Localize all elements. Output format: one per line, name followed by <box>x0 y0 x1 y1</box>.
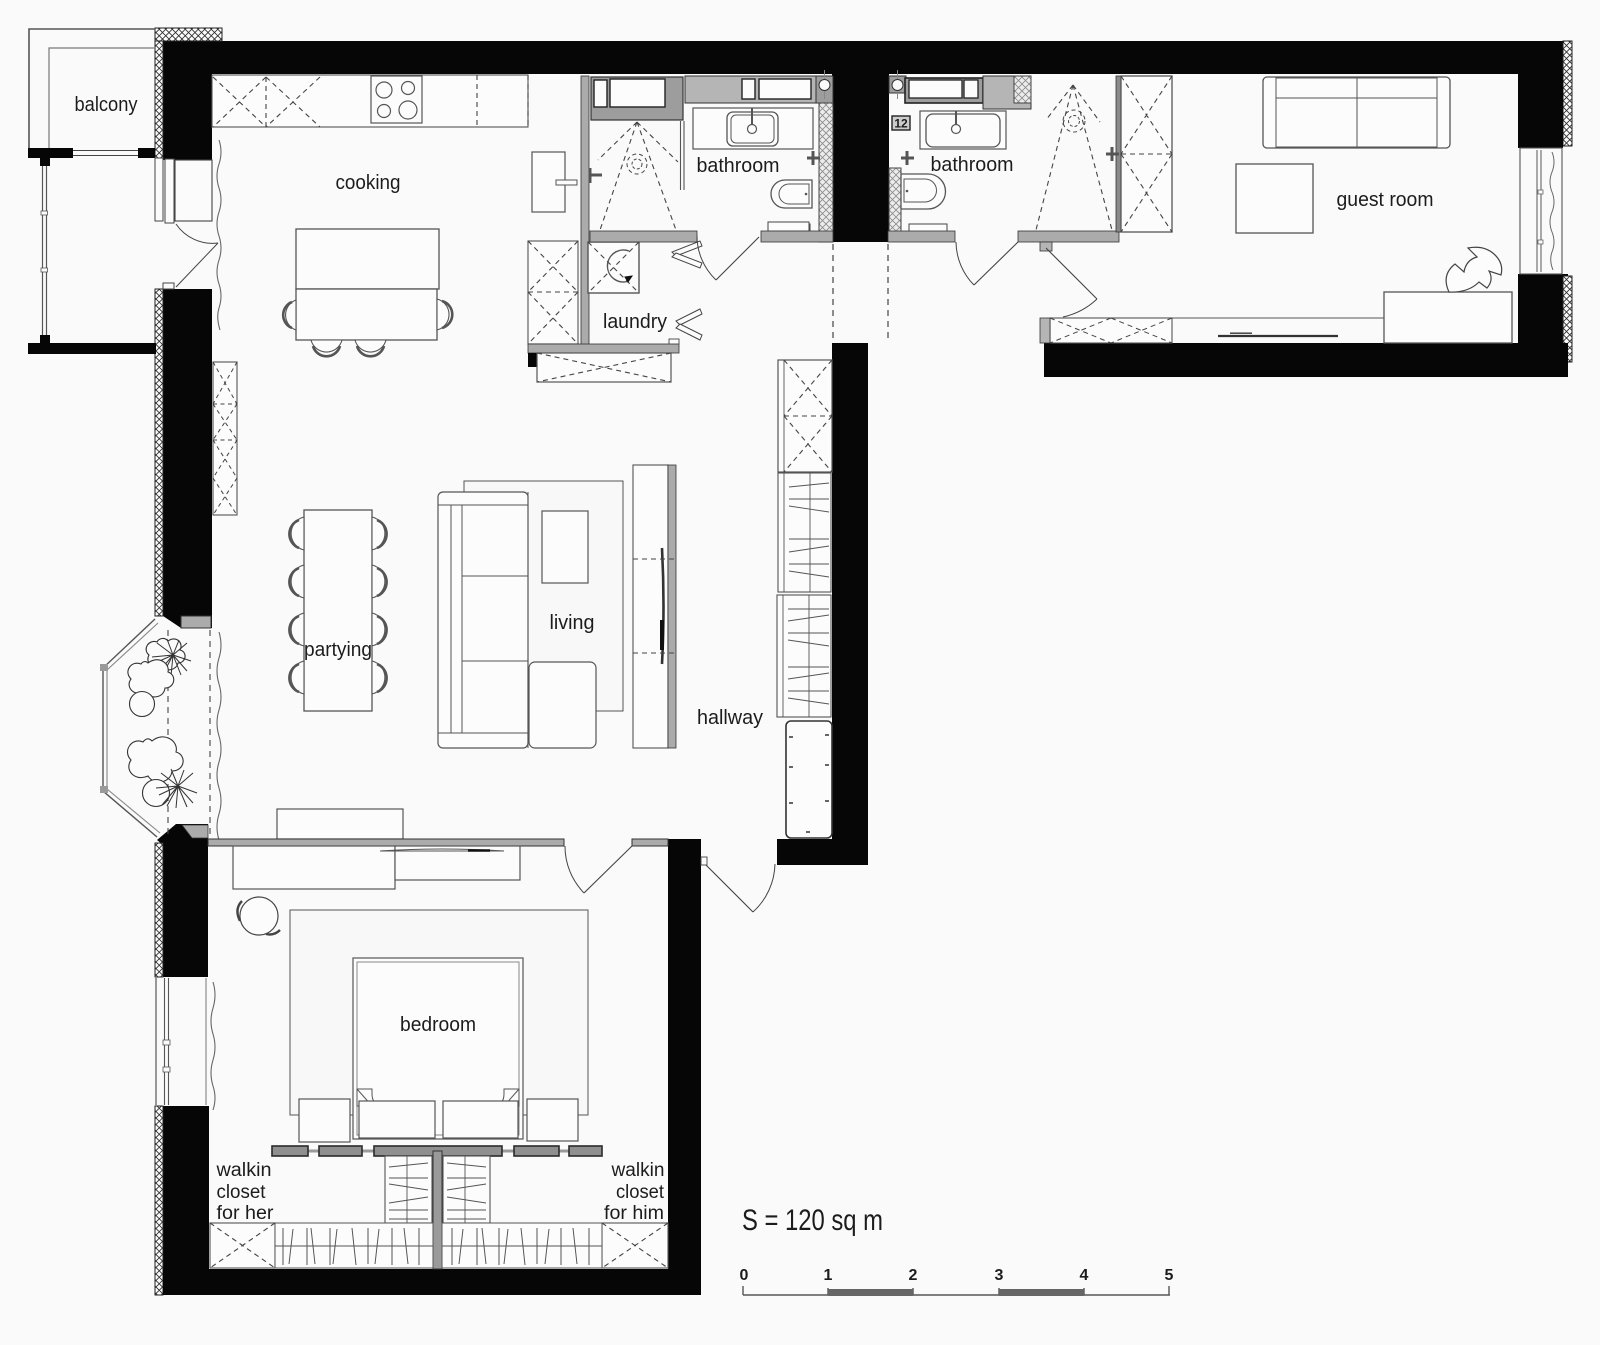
svg-text:3: 3 <box>995 1267 1004 1284</box>
svg-text:guest room: guest room <box>1337 189 1434 211</box>
svg-text:5: 5 <box>1165 1267 1174 1284</box>
svg-text:hallway: hallway <box>697 707 763 729</box>
svg-text:closet: closet <box>616 1182 665 1203</box>
svg-text:12: 12 <box>894 117 908 131</box>
svg-text:partying: partying <box>304 639 372 661</box>
svg-text:1: 1 <box>824 1267 833 1284</box>
svg-text:0: 0 <box>740 1267 749 1284</box>
svg-text:bedroom: bedroom <box>400 1014 476 1036</box>
svg-text:bathroom: bathroom <box>931 154 1014 176</box>
svg-text:bathroom: bathroom <box>697 155 780 177</box>
svg-text:cooking: cooking <box>336 172 401 194</box>
svg-text:closet: closet <box>217 1182 267 1203</box>
svg-text:balcony: balcony <box>75 94 138 116</box>
svg-text:2: 2 <box>909 1267 918 1284</box>
svg-text:for him: for him <box>604 1203 664 1224</box>
svg-text:living: living <box>550 612 595 634</box>
svg-text:laundry: laundry <box>603 311 667 333</box>
svg-text:for her: for her <box>217 1203 275 1224</box>
svg-text:4: 4 <box>1080 1267 1089 1284</box>
svg-text:walkin: walkin <box>610 1160 664 1181</box>
svg-text:walkin: walkin <box>215 1160 271 1181</box>
svg-text:S = 120 sq m: S = 120 sq m <box>742 1204 883 1237</box>
